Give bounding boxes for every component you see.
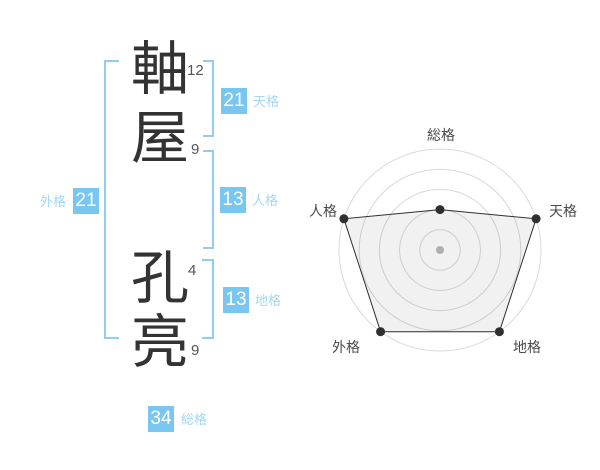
radar-data-point: [495, 327, 504, 336]
radar-axis-label: 人格: [309, 203, 337, 219]
radar-axis-label: 総格: [427, 127, 455, 143]
radar-chart: 総格天格地格外格人格: [0, 0, 600, 470]
radar-data-point: [339, 214, 348, 223]
radar-axis-label: 外格: [332, 339, 360, 355]
name-fortune-panel: 軸 12 屋 9 孔 4 亮 9 21 天格 13 人格 外格 21 13 地格…: [0, 0, 600, 470]
radar-axis-label: 地格: [513, 339, 541, 355]
radar-data-polygon: [344, 210, 536, 332]
radar-data-point: [376, 327, 385, 336]
radar-axis-label: 天格: [549, 203, 577, 219]
radar-data-point: [532, 214, 541, 223]
radar-data-point: [436, 205, 445, 214]
